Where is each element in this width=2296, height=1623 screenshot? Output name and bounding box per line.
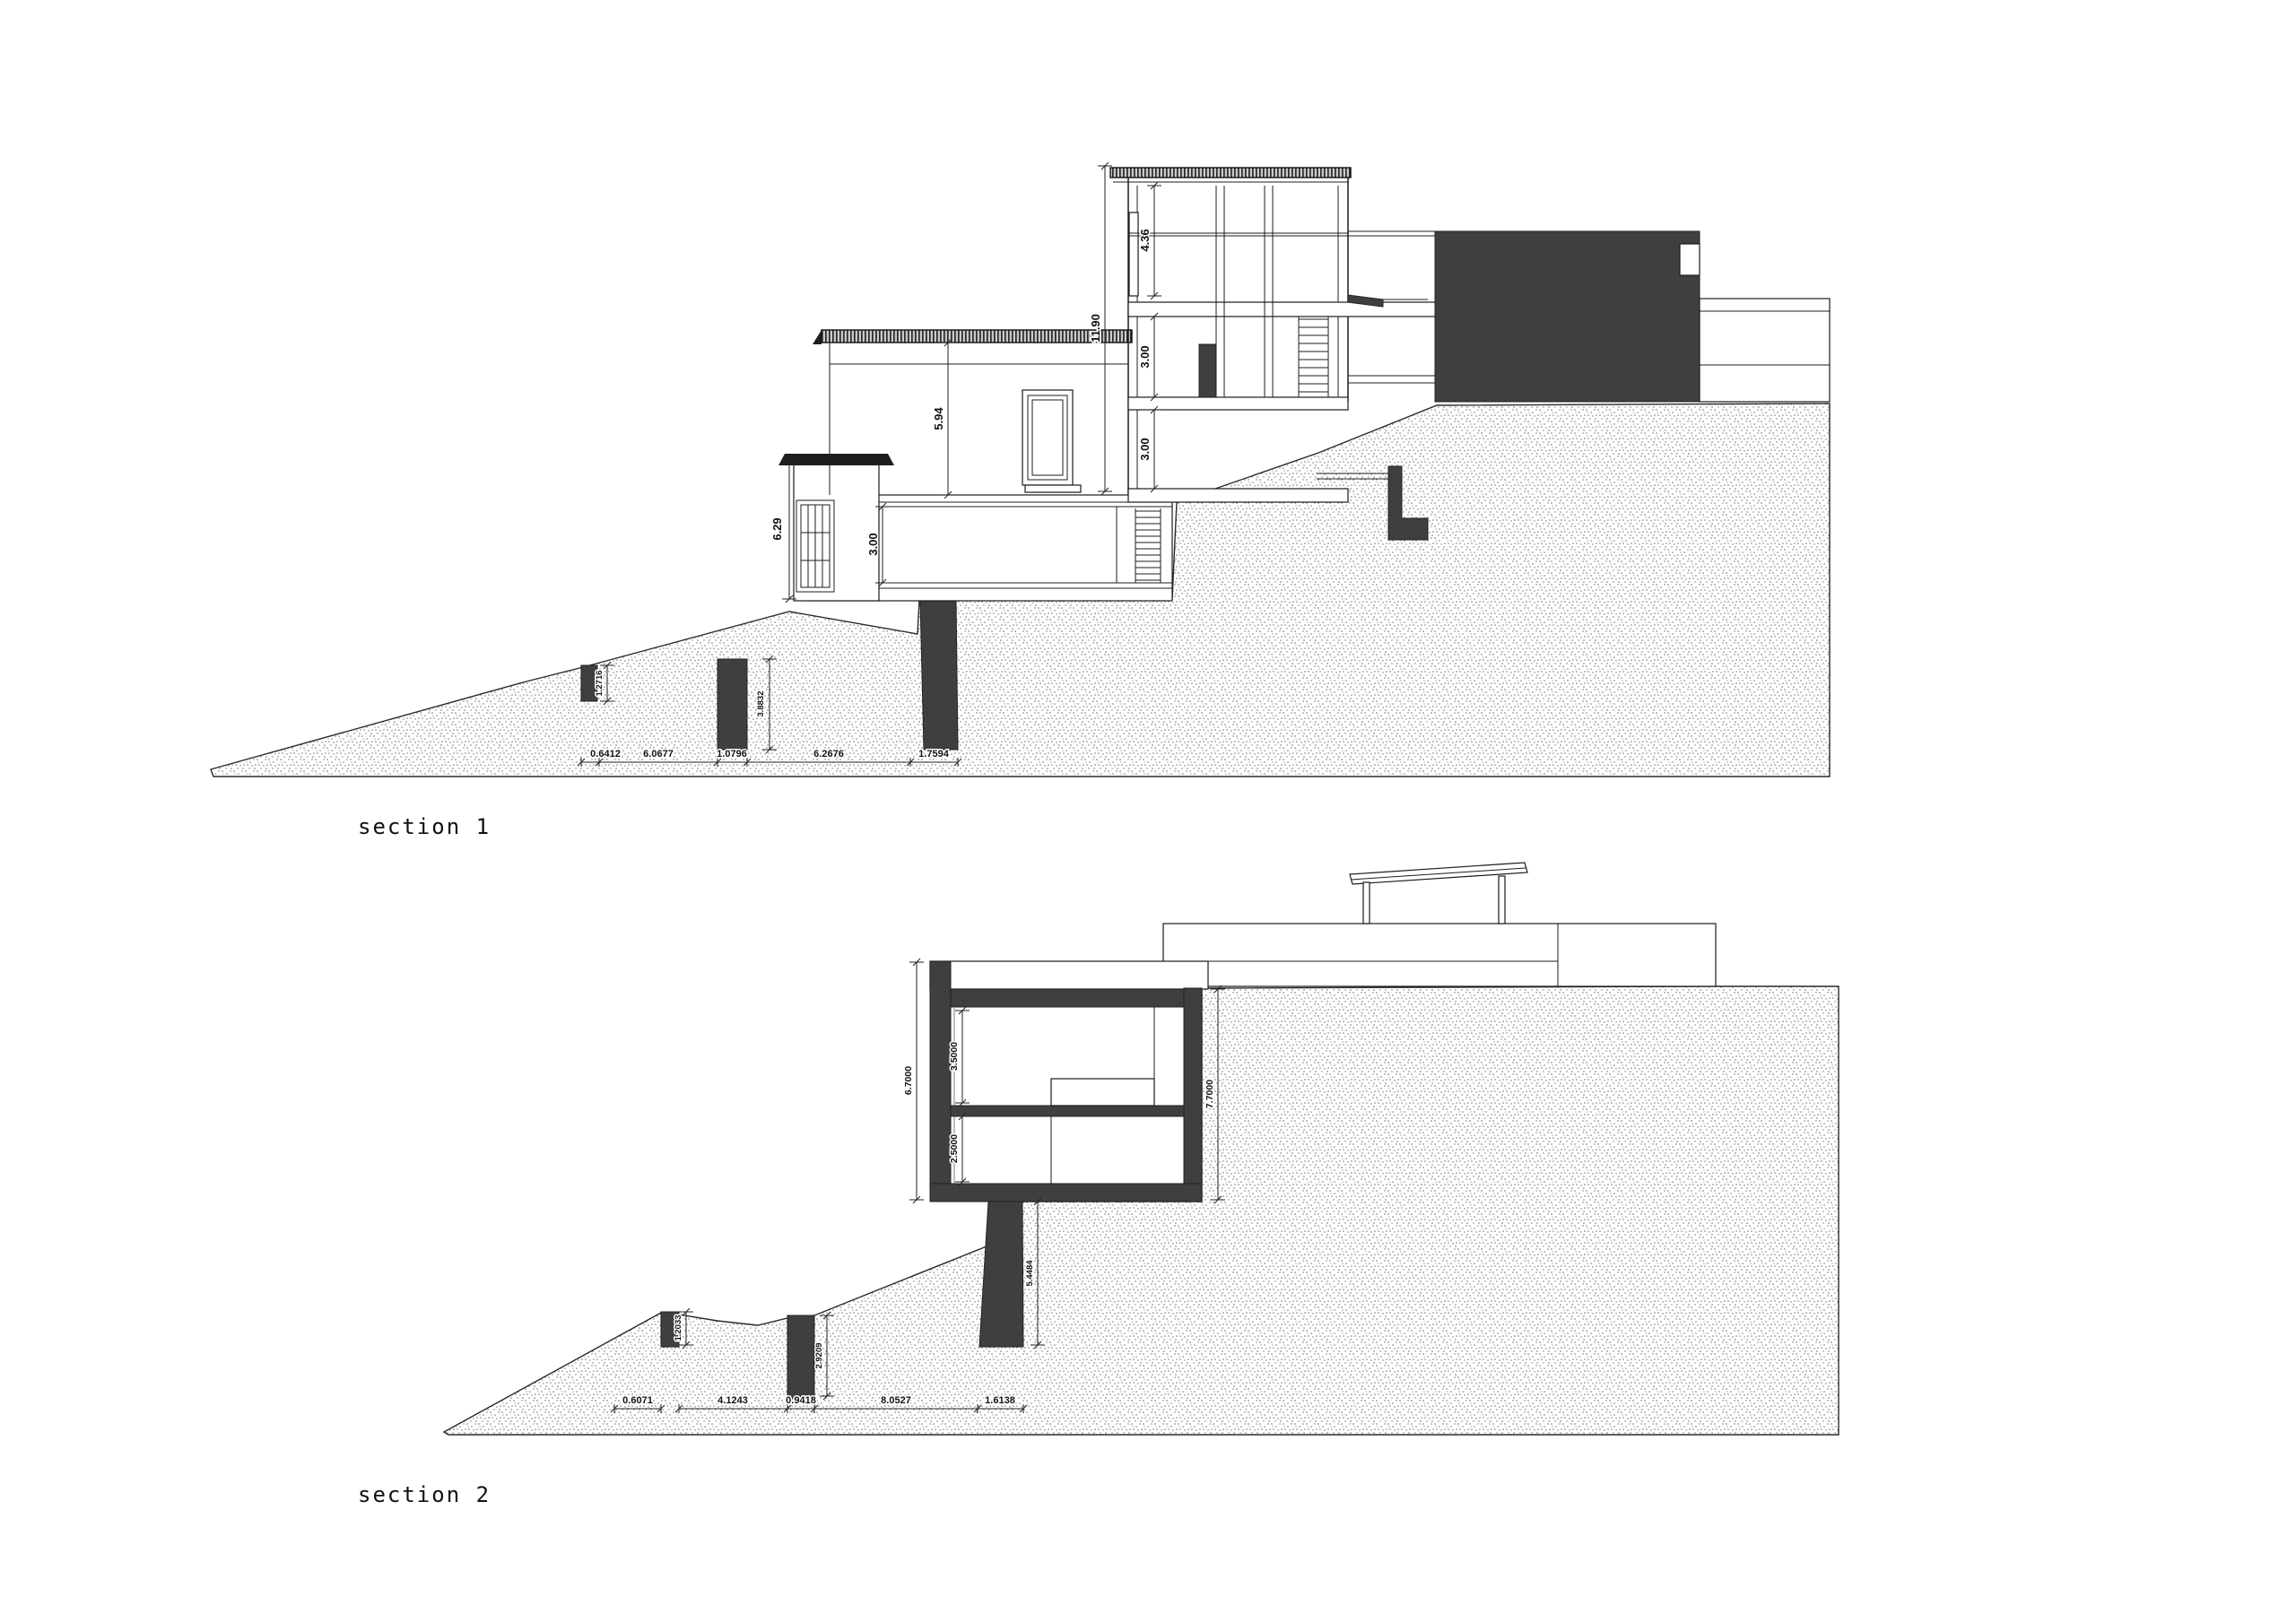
box-top-slab [951,989,1195,1007]
chain1-seg3: 1.0796 [717,749,747,759]
dim-wing-height: 5.94 [932,407,945,430]
dim-pavilion-height: 6.29 [770,517,784,540]
dim-pier: 5.4484 [1025,1260,1035,1287]
chain1-seg1: 0.6412 [590,749,621,759]
section2-drawing: 6.7000 3.5000 2.5000 7.7000 5.4484 1.203… [358,863,1839,1507]
section1-dark-building [1435,231,1700,402]
tower-shaft [1216,186,1273,397]
tower-slab-2 [1128,302,1444,317]
section1-drawing: 11.90 4.36 3.00 3.00 5.94 3.00 6.29 1.27… [211,162,1830,839]
section1-right-band [1700,299,1830,402]
dark-building-notch [1680,244,1700,275]
section1-post-2 [717,659,747,750]
skylight-monitor [1350,863,1527,924]
wing-door [1022,390,1081,492]
tower-stair [1299,317,1328,397]
box-parapet [930,961,1208,989]
tower-door [1199,344,1216,397]
section2-title: section 2 [358,1482,491,1507]
sections-canvas: 11.90 4.36 3.00 3.00 5.94 3.00 6.29 1.27… [0,0,2296,1623]
chain1-seg2: 6.0677 [643,749,674,759]
chain2-seg4: 8.0527 [881,1395,911,1406]
dim-tower-lower-floor: 3.00 [1138,438,1152,460]
chain1-seg5: 1.7594 [918,749,950,759]
section2-wall-2 [787,1315,814,1399]
box-upper-platform [1051,1079,1154,1106]
section1-pavilion [778,454,894,601]
box-left-wall [930,961,951,1202]
dim-lower-room: 2.5000 [949,1134,960,1163]
chain2-seg3: 0.9418 [786,1395,816,1406]
dim-upper-room: 3.5000 [949,1042,960,1071]
dim-right-overall: 7.7000 [1205,1080,1215,1108]
tower-slab-4 [1128,489,1348,502]
chain2-seg5: 1.6138 [985,1395,1015,1406]
dim-wall2: 2.9209 [814,1342,824,1368]
dim-left-overall: 6.7000 [903,1066,914,1095]
dim-tower-mid-floor: 3.00 [1138,345,1152,368]
section2-roof-deck [1163,863,1716,986]
dim-post1: 1.2716 [595,670,604,696]
box-bottom-slab [930,1184,1202,1202]
dim-wall1: 1.2033 [674,1315,683,1341]
dim-post2: 3.8832 [756,690,766,716]
section2-ground-hatch [444,986,1839,1435]
section2-pier [979,1202,1023,1347]
wing-roof [822,330,1132,343]
section1-title: section 1 [358,814,491,839]
tower-roof [1110,168,1351,178]
section1-pier [920,601,958,750]
box-mid-slab [951,1106,1184,1116]
drawing-sheet: 11.90 4.36 3.00 3.00 5.94 3.00 6.29 1.27… [0,0,2296,1623]
tower-slab-3 [1128,397,1348,410]
chain2-seg1: 0.6071 [622,1395,653,1406]
dim-basement-height: 3.00 [866,533,880,555]
chain1-seg4: 6.2676 [813,749,844,759]
section2-terrain [444,986,1839,1435]
chain2-seg2: 4.1243 [717,1395,748,1406]
tower-window [1129,213,1138,296]
box-right-wall [1184,988,1202,1202]
section2-box [930,961,1208,1202]
dim-tower-top-floor: 4.36 [1138,229,1152,251]
dim-tower-overall: 11.90 [1089,314,1102,343]
